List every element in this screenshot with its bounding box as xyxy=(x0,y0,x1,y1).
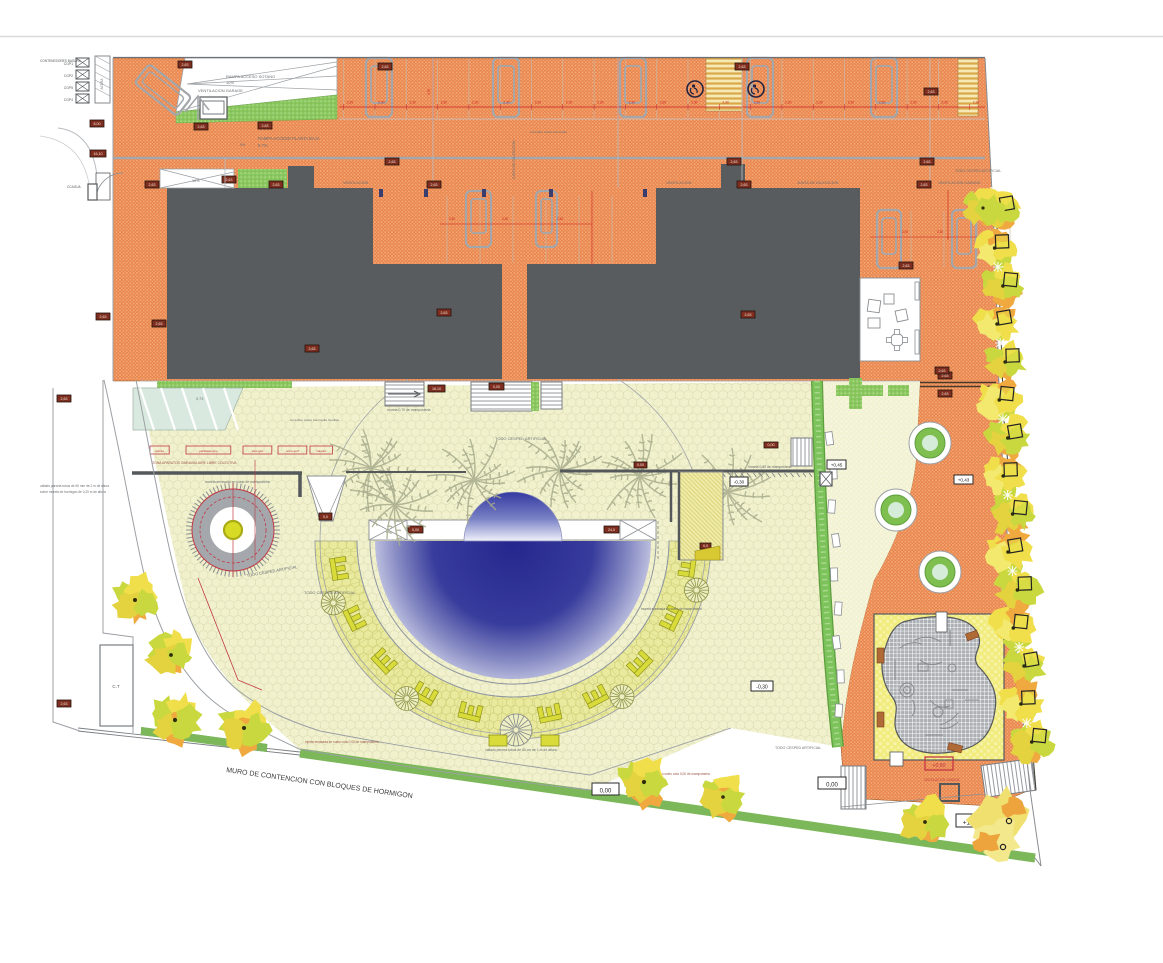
svg-text:VENTILACION: VENTILACION xyxy=(666,181,692,185)
svg-text:2,63: 2,63 xyxy=(745,313,752,317)
svg-text:vallado pecera tubos de 60 cm: vallado pecera tubos de 60 cm de 1 m de … xyxy=(485,748,557,752)
svg-text:2,30: 2,30 xyxy=(449,217,455,221)
svg-text:vallado parcela tubos de 60 mm: vallado parcela tubos de 60 mm de 2 m de… xyxy=(40,484,109,488)
svg-text:0,00: 0,00 xyxy=(493,385,500,389)
svg-text:0,73: 0,73 xyxy=(196,397,203,401)
svg-text:VENTILACION GARAGE: VENTILACION GARAGE xyxy=(198,88,243,93)
svg-text:0,0: 0,0 xyxy=(323,515,328,519)
svg-text:TODO CESPED ARTIFICIAL: TODO CESPED ARTIFICIAL xyxy=(955,169,1001,173)
svg-text:TODO CESPED ARTIFICIAL: TODO CESPED ARTIFICIAL xyxy=(495,436,547,441)
svg-text:2,30: 2,30 xyxy=(937,230,943,234)
svg-text:2,63: 2,63 xyxy=(61,397,68,401)
svg-text:CGP2: CGP2 xyxy=(64,74,73,78)
svg-text:-0,30: -0,30 xyxy=(734,479,745,484)
svg-text:2,30: 2,30 xyxy=(879,101,886,105)
svg-text:2,63: 2,63 xyxy=(928,90,935,94)
svg-text:2,63: 2,63 xyxy=(441,311,448,315)
svg-text:zona libre cuarto intermedio h: zona libre cuarto intermedio hornillas xyxy=(290,418,340,422)
svg-text:ACERA: ACERA xyxy=(100,78,104,90)
svg-text:2,63: 2,63 xyxy=(100,315,107,319)
svg-text:2,63: 2,63 xyxy=(182,63,189,67)
svg-text:2,30: 2,30 xyxy=(910,101,917,105)
svg-text:2,63: 2,63 xyxy=(731,160,738,164)
svg-text:2,30: 2,30 xyxy=(691,101,698,105)
svg-text:CONTENEDORES BASURA: CONTENEDORES BASURA xyxy=(40,59,82,63)
svg-text:2,63: 2,63 xyxy=(739,65,746,69)
svg-text:4,76: 4,76 xyxy=(427,89,431,95)
svg-text:mureta enrasada en suelo de ma: mureta enrasada en suelo de mamposteria xyxy=(641,607,702,611)
svg-text:CGP4: CGP4 xyxy=(64,98,73,102)
svg-text:RAMPA ACCESO SOTANO: RAMPA ACCESO SOTANO xyxy=(226,74,275,79)
svg-text:+0,43: +0,43 xyxy=(958,477,970,482)
svg-text:2,30: 2,30 xyxy=(597,101,604,105)
svg-text:mureta 0,80 de mamposteria: mureta 0,80 de mamposteria xyxy=(748,465,791,469)
svg-text:mureta 0,70 de mamposteria: mureta 0,70 de mamposteria xyxy=(387,408,430,412)
svg-text:18,10: 18,10 xyxy=(432,387,441,391)
svg-text:2,30: 2,30 xyxy=(941,101,948,105)
svg-text:2,63: 2,63 xyxy=(226,178,233,182)
svg-text:2,30: 2,30 xyxy=(722,101,729,105)
svg-text:2,63: 2,63 xyxy=(61,702,68,706)
svg-text:paralelas-giro: paralelas-giro xyxy=(199,449,218,453)
svg-text:2,63: 2,63 xyxy=(942,374,949,378)
svg-text:2,63: 2,63 xyxy=(156,322,163,326)
svg-text:0,00: 0,00 xyxy=(768,443,775,447)
svg-text:0,00: 0,00 xyxy=(412,528,419,532)
svg-text:2,30: 2,30 xyxy=(754,101,761,105)
svg-text:24,0: 24,0 xyxy=(608,528,615,532)
svg-text:10%: 10% xyxy=(226,80,234,85)
svg-text:0,00: 0,00 xyxy=(826,782,838,788)
svg-text:2,30: 2,30 xyxy=(503,101,510,105)
svg-text:2,63: 2,63 xyxy=(431,183,438,187)
svg-text:2,63: 2,63 xyxy=(198,125,205,129)
svg-text:2,30: 2,30 xyxy=(472,101,479,105)
svg-text:2,63: 2,63 xyxy=(942,392,949,396)
svg-text:TODO CESPED ARTIFICIAL: TODO CESPED ARTIFICIAL xyxy=(304,590,356,595)
svg-text:2,63: 2,63 xyxy=(903,264,910,268)
svg-text:2,30: 2,30 xyxy=(441,101,448,105)
svg-text:volante: volante xyxy=(316,449,326,453)
svg-text:2,30: 2,30 xyxy=(660,101,667,105)
svg-text:JUNTA DE DILATACION: JUNTA DE DILATACION xyxy=(797,181,839,185)
svg-text:2,63: 2,63 xyxy=(273,183,280,187)
svg-text:9%: 9% xyxy=(240,143,246,147)
svg-text:injerta enrasada en suelo cota: injerta enrasada en suelo cota 0,00 de m… xyxy=(305,740,379,744)
svg-text:2,30: 2,30 xyxy=(973,101,980,105)
svg-text:2,63: 2,63 xyxy=(389,160,396,164)
svg-text:2,63: 2,63 xyxy=(741,183,748,187)
svg-text:2,30: 2,30 xyxy=(347,101,354,105)
svg-text:16,10: 16,10 xyxy=(94,152,103,156)
svg-text:8,00: 8,00 xyxy=(94,122,101,126)
svg-text:C.T: C.T xyxy=(112,684,120,689)
svg-text:10%: 10% xyxy=(192,179,200,183)
svg-text:2,30: 2,30 xyxy=(409,101,416,105)
svg-text:VENTILACION GARAGE: VENTILACION GARAGE xyxy=(938,181,981,185)
svg-text:+0,80: +0,80 xyxy=(932,763,945,769)
svg-text:5.7%: 5.7% xyxy=(258,143,268,148)
svg-text:2,63: 2,63 xyxy=(921,183,928,187)
svg-text:2,30: 2,30 xyxy=(557,217,563,221)
svg-text:-0,30: -0,30 xyxy=(756,684,768,690)
svg-text:2,30: 2,30 xyxy=(378,101,385,105)
svg-text:2,63: 2,63 xyxy=(939,369,946,373)
svg-text:sobre mureta de hormigon de 0,: sobre mureta de hormigon de 0,20 m de al… xyxy=(40,490,106,494)
svg-text:VENTILACION: VENTILACION xyxy=(343,181,369,185)
svg-text:2,63: 2,63 xyxy=(309,347,316,351)
svg-text:2,63: 2,63 xyxy=(262,124,269,128)
svg-text:2,30: 2,30 xyxy=(785,101,792,105)
svg-text:CGP5: CGP5 xyxy=(64,86,73,90)
svg-text:mureta enrasada en suelo de ma: mureta enrasada en suelo de mamposteria xyxy=(205,480,270,484)
svg-text:2,30: 2,30 xyxy=(902,230,908,234)
svg-text:VENTILACION GARAGE: VENTILACION GARAGE xyxy=(924,778,960,782)
svg-text:2,30: 2,30 xyxy=(535,101,542,105)
svg-text:2,30: 2,30 xyxy=(628,101,635,105)
svg-text:0,00: 0,00 xyxy=(637,463,644,467)
svg-text:2,63: 2,63 xyxy=(382,65,389,69)
svg-text:0,0: 0,0 xyxy=(703,544,708,548)
svg-text:2,30: 2,30 xyxy=(816,101,823,105)
svg-text:2,63: 2,63 xyxy=(924,160,931,164)
svg-text:step-giro: step-giro xyxy=(252,449,264,453)
svg-text:remo-surf: remo-surf xyxy=(286,449,299,453)
svg-text:barras: barras xyxy=(155,449,164,453)
svg-text:ZONA APARATOS GIMNASIA AIRE LI: ZONA APARATOS GIMNASIA AIRE LIBRE COLECT… xyxy=(152,461,237,465)
svg-text:2,30: 2,30 xyxy=(566,101,573,105)
svg-text:2,63: 2,63 xyxy=(149,183,156,187)
svg-text:0,00: 0,00 xyxy=(600,788,612,794)
svg-text:zona libre cuarto intermedio: zona libre cuarto intermedio xyxy=(530,130,567,134)
svg-text:JUNTA DE DILATACION: JUNTA DE DILATACION xyxy=(512,140,516,180)
svg-text:+0,45: +0,45 xyxy=(831,462,843,467)
svg-text:CCAGUA: CCAGUA xyxy=(67,185,82,189)
svg-text:2,30: 2,30 xyxy=(848,101,855,105)
svg-text:TODO CESPED ARTIFICIAL: TODO CESPED ARTIFICIAL xyxy=(775,746,821,750)
svg-text:2,30: 2,30 xyxy=(502,217,508,221)
svg-text:RAMPA ACCESO PLANTA BAJA: RAMPA ACCESO PLANTA BAJA xyxy=(258,136,320,141)
